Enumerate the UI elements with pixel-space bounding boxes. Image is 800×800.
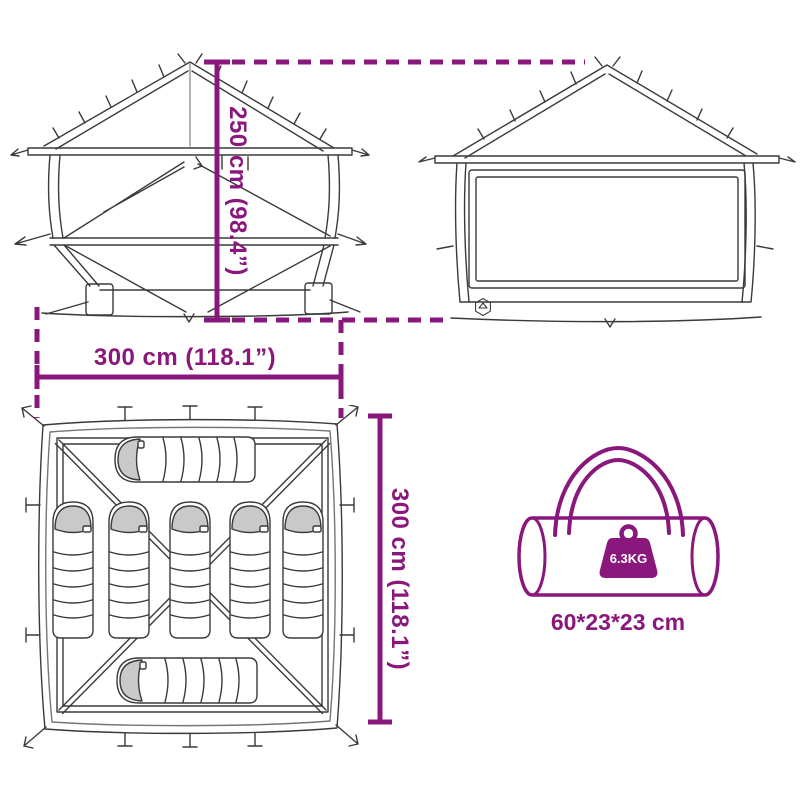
tent-side-view-icon bbox=[405, 50, 800, 332]
sleeping-bag-icon bbox=[53, 502, 93, 638]
interior-poles bbox=[64, 162, 330, 238]
side-wing-right bbox=[338, 234, 366, 245]
corner-posts bbox=[49, 155, 340, 238]
side-wing-left bbox=[15, 234, 50, 245]
brand-badge-icon bbox=[476, 299, 491, 316]
sleeping-bag-icon bbox=[109, 502, 149, 638]
foot-right bbox=[305, 283, 332, 314]
sleeping-bags bbox=[53, 437, 323, 703]
foot-left bbox=[86, 284, 113, 315]
roof-pole-spikes-left bbox=[53, 65, 164, 138]
roof-outline bbox=[44, 62, 334, 151]
tent-front-view-icon bbox=[0, 50, 372, 332]
eave-beam bbox=[28, 148, 352, 155]
wall-panel-inner bbox=[476, 177, 738, 281]
roof-outline bbox=[453, 65, 757, 158]
guy-lines bbox=[46, 300, 360, 314]
product-dimension-diagram: 250 cm (98.4”) 300 cm (118.1”) 300 cm (1… bbox=[0, 0, 800, 800]
wall-panel-outer bbox=[469, 170, 745, 288]
lower-legs bbox=[54, 245, 334, 286]
mid-bar bbox=[50, 238, 338, 245]
stake-loop bbox=[184, 314, 194, 322]
tent-top-view-icon bbox=[0, 405, 380, 753]
tent-height-label: 250 cm (98.4”) bbox=[222, 56, 252, 326]
sleeping-bag-icon bbox=[117, 658, 257, 703]
stake-loop bbox=[605, 319, 615, 327]
roof-pole-spikes-right bbox=[637, 71, 733, 138]
tent-width-label: 300 cm (118.1”) bbox=[35, 344, 335, 372]
bag-weight-label: 6.3KG bbox=[598, 551, 659, 566]
roof-pole-spikes-left bbox=[478, 72, 576, 139]
sleeping-bag-icon bbox=[170, 502, 210, 638]
lower-cross-poles bbox=[66, 246, 330, 312]
sleeping-bag-icon bbox=[283, 502, 323, 638]
bag-size-label: 60*23*23 cm bbox=[500, 609, 736, 636]
carry-bag-icon bbox=[505, 445, 740, 610]
sleeping-bag-icon bbox=[230, 502, 270, 638]
tent-depth-label: 300 cm (118.1”) bbox=[384, 434, 414, 724]
eave-beam bbox=[435, 156, 779, 163]
side-spikes bbox=[437, 246, 773, 249]
eave-tips bbox=[419, 157, 795, 162]
sleeping-bag-icon bbox=[115, 437, 255, 482]
